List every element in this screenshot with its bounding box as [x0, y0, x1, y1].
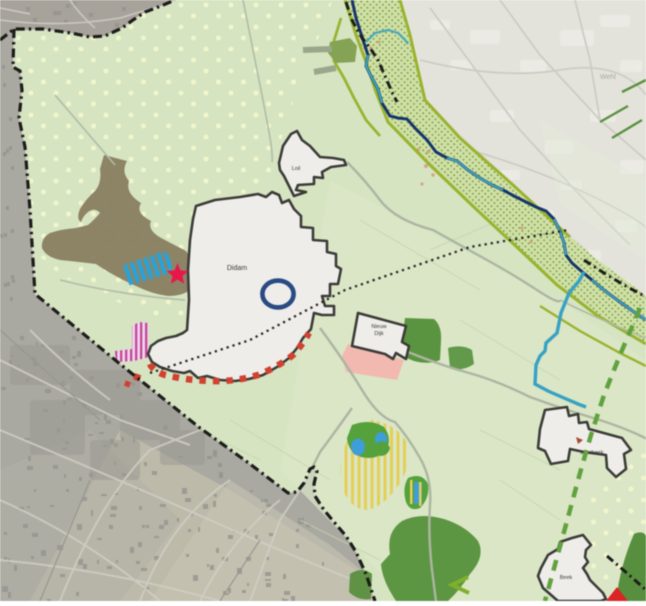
- svg-text:Dijk: Dijk: [374, 331, 383, 337]
- svg-text:Wehl: Wehl: [600, 74, 616, 81]
- svg-text:Nieuw: Nieuw: [371, 324, 386, 330]
- svg-text:Didam: Didam: [227, 265, 247, 272]
- svg-text:Beek: Beek: [560, 575, 573, 581]
- svg-text:Loil: Loil: [292, 166, 301, 172]
